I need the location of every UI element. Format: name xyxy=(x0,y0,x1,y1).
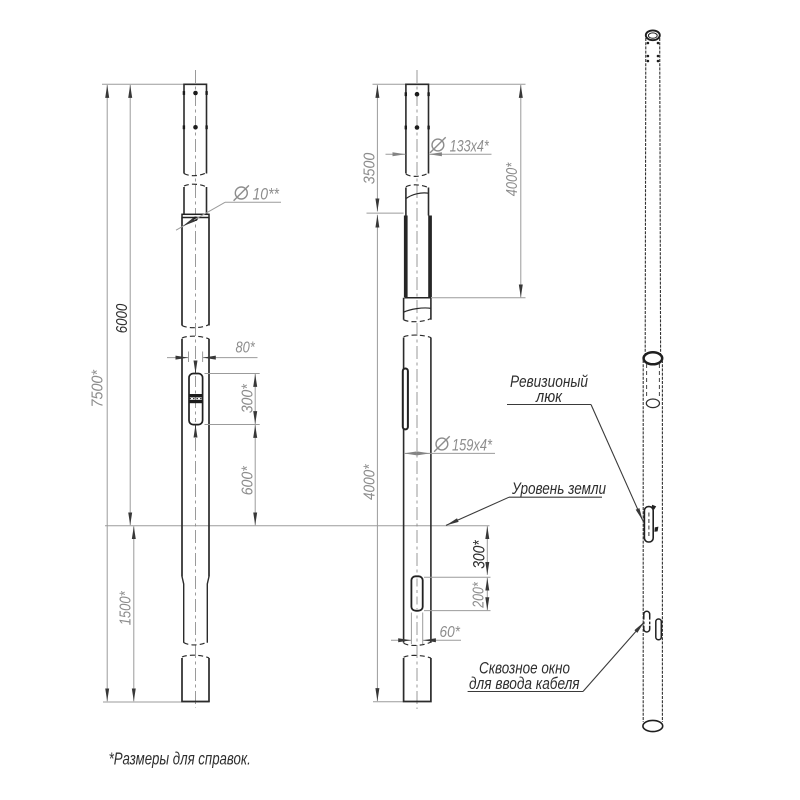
svg-text:4000*: 4000* xyxy=(504,162,521,196)
svg-text:300*: 300* xyxy=(469,539,488,569)
svg-text:1500*: 1500* xyxy=(118,591,135,626)
svg-text:80*: 80* xyxy=(236,340,256,357)
svg-text:133x4*: 133x4* xyxy=(450,138,490,156)
svg-text:10**: 10** xyxy=(253,185,280,203)
svg-text:*Размеры для справок.: *Размеры для справок. xyxy=(109,749,251,769)
svg-text:3500: 3500 xyxy=(362,153,379,185)
svg-text:6000: 6000 xyxy=(114,304,131,334)
svg-text:600*: 600* xyxy=(239,465,256,495)
svg-text:Уровень земли: Уровень земли xyxy=(511,479,606,498)
svg-text:7500*: 7500* xyxy=(90,369,107,407)
svg-text:4000*: 4000* xyxy=(361,464,378,500)
svg-text:для ввода кабеля: для ввода кабеля xyxy=(469,674,580,693)
svg-text:люк: люк xyxy=(535,387,563,406)
svg-text:300*: 300* xyxy=(239,383,256,413)
svg-text:159x4*: 159x4* xyxy=(452,437,492,455)
svg-text:200*: 200* xyxy=(471,582,488,609)
svg-text:60*: 60* xyxy=(440,624,461,641)
